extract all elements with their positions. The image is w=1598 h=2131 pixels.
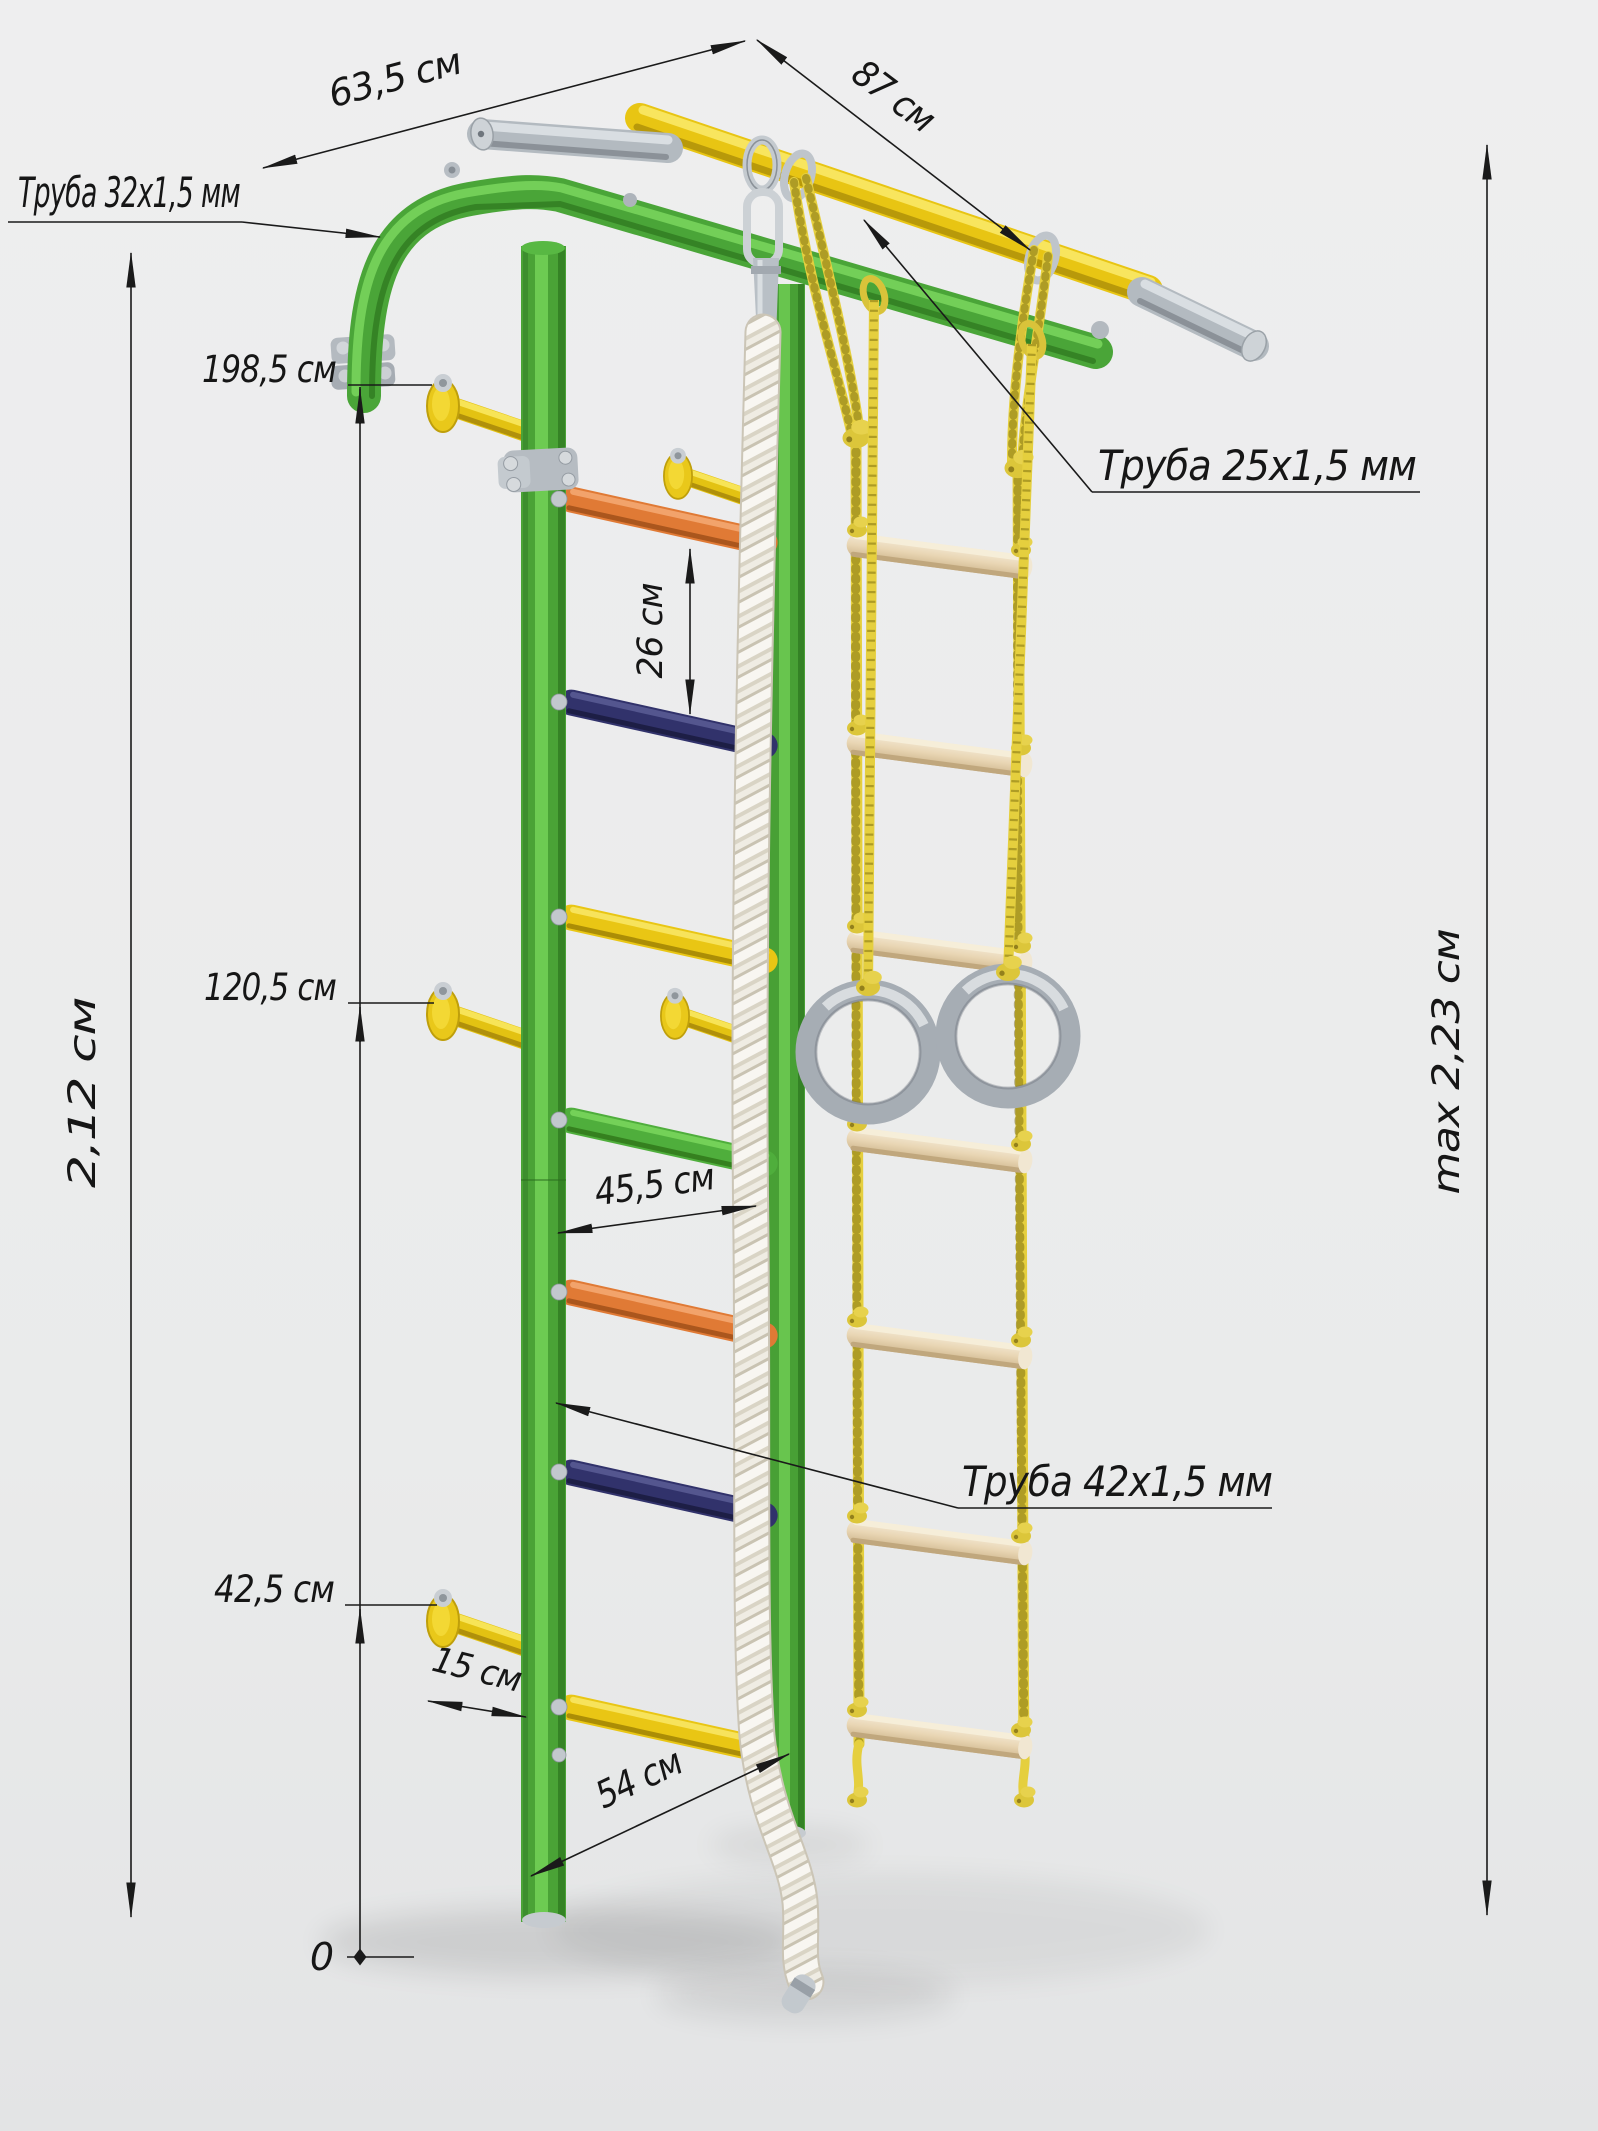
label-tube-42: Труба 42x1,5 мм — [962, 1457, 1272, 1506]
label-tube-25: Труба 25x1,5 мм — [1098, 441, 1416, 490]
stringer-clamp — [497, 447, 579, 493]
illustration-stage: Труба 32x1,5 мм Труба 25x1,5 мм Труба 42… — [0, 0, 1598, 2131]
label-height-42: 42,5 см — [214, 1568, 334, 1611]
label-rung-spacing: 26 см — [631, 583, 671, 679]
wall-bars-technical-illustration: Труба 32x1,5 мм Труба 25x1,5 мм Труба 42… — [0, 0, 1598, 2131]
label-height-198: 198,5 см — [202, 348, 336, 391]
label-tube-32: Труба 32x1,5 мм — [18, 168, 240, 217]
label-zero-level: 0 — [310, 1935, 333, 1979]
label-total-height: 2,12 см — [61, 998, 104, 1188]
label-max-height: max 2,23 см — [1425, 929, 1468, 1194]
label-height-120: 120,5 см — [204, 966, 336, 1009]
left-stringer-post — [521, 241, 567, 1928]
left-post-end-cap — [522, 1912, 566, 1928]
